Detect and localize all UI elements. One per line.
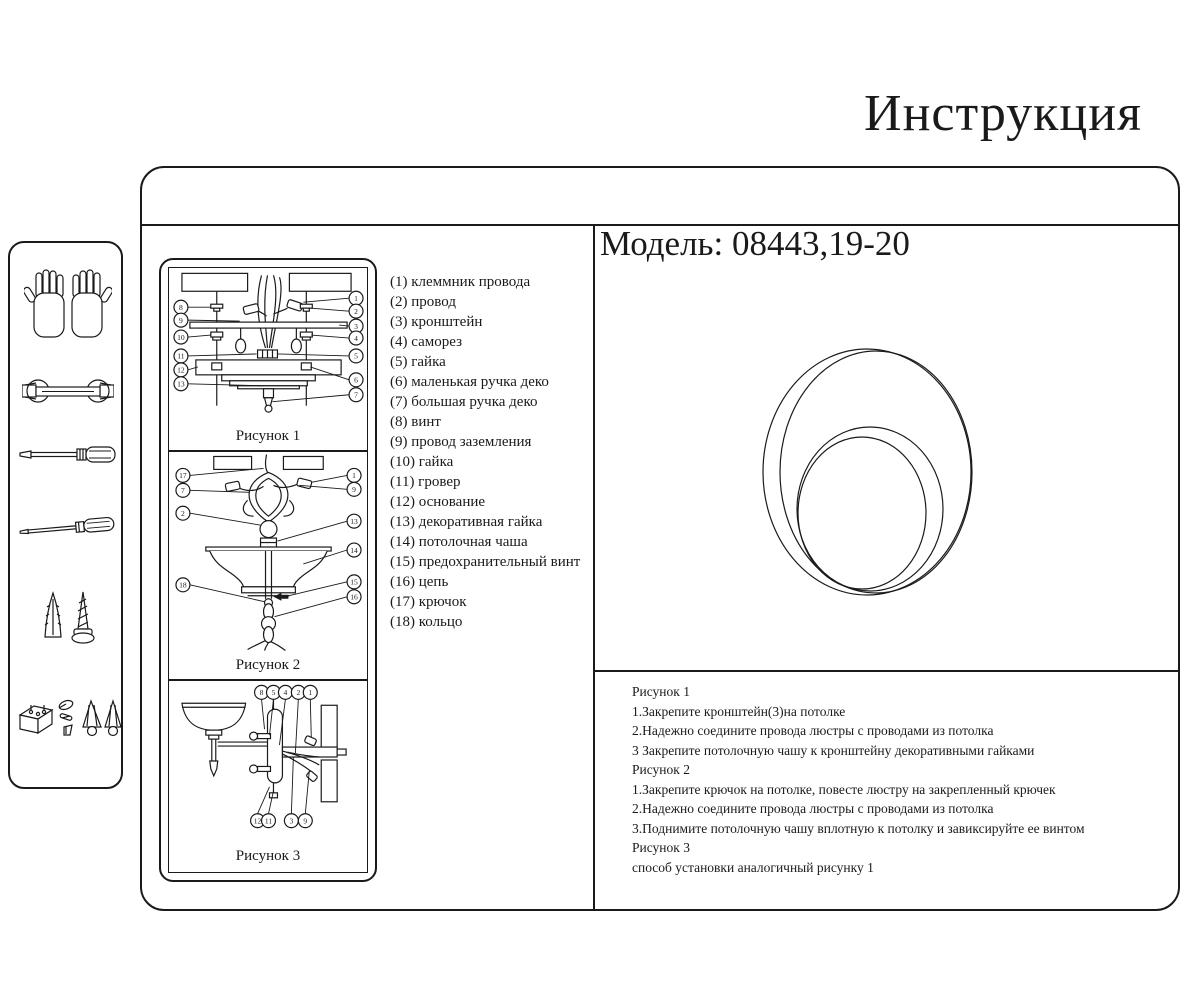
part-item: (4) саморез xyxy=(390,332,592,352)
instruction-line: 2.Надежно соедините провода люстры с про… xyxy=(632,721,1132,741)
figure-2: 17 7 2 18 1 9 13 14 15 16 Рисунок 2 xyxy=(169,452,367,681)
callout-number: 2 xyxy=(181,509,185,518)
callout-number: 9 xyxy=(179,316,183,325)
callout-number: 12 xyxy=(253,816,261,825)
figure-3: 8 5 4 2 1 12 11 3 9 Рисунок 3 xyxy=(169,681,367,870)
callout-number: 3 xyxy=(289,816,293,825)
page-title: Инструкция xyxy=(864,84,1142,143)
screwdriver-icon xyxy=(10,441,125,469)
figure-2-diagram: 17 7 2 18 1 9 13 14 15 16 xyxy=(170,452,367,652)
callout-number: 15 xyxy=(350,578,358,587)
callout-number: 9 xyxy=(303,816,307,825)
callout-number: 1 xyxy=(354,294,358,303)
part-item: (2) провод xyxy=(390,292,592,312)
lamp-illustration xyxy=(742,333,1022,618)
part-item: (17) крючок xyxy=(390,592,592,612)
part-item: (6) маленькая ручка деко xyxy=(390,372,592,392)
part-item: (18) кольцо xyxy=(390,612,592,632)
vertical-divider xyxy=(593,224,595,909)
instruction-line: 1.Закрепите кронштейн(3)на потолке xyxy=(632,702,1132,722)
callout-number: 3 xyxy=(354,322,358,331)
instruction-line: Рисунок 2 xyxy=(632,760,1132,780)
part-item: (3) кронштейн xyxy=(390,312,592,332)
part-item: (12) основание xyxy=(390,492,592,512)
parts-list: (1) клеммник провода (2) провод (3) крон… xyxy=(390,272,592,632)
gloves-icon xyxy=(10,267,125,343)
callout-number: 5 xyxy=(271,688,275,697)
callout-number: 7 xyxy=(354,391,358,400)
instruction-line: Рисунок 3 xyxy=(632,838,1132,858)
callout-number: 12 xyxy=(177,366,185,375)
instruction-sheet: { "title": "Инструкция", "model_line": "… xyxy=(0,0,1200,999)
figure-3-diagram: 8 5 4 2 1 12 11 3 9 xyxy=(170,681,367,837)
callout-number: 1 xyxy=(308,688,312,697)
callout-number: 4 xyxy=(283,688,287,697)
callout-number: 1 xyxy=(352,471,356,480)
callout-number: 13 xyxy=(177,380,185,389)
figure-3-label: Рисунок 3 xyxy=(169,848,367,865)
figure-1: 8 9 10 11 12 13 1 2 3 4 5 6 xyxy=(169,268,367,452)
callout-number: 4 xyxy=(354,334,358,343)
part-item: (5) гайка xyxy=(390,352,592,372)
hardware-set-icon xyxy=(10,693,125,749)
figure-1-diagram: 8 9 10 11 12 13 1 2 3 4 5 6 xyxy=(170,268,367,422)
instruction-line: способ установки аналогичный рисунку 1 xyxy=(632,858,1132,878)
part-item: (11) гровер xyxy=(390,472,592,492)
part-item: (7) большая ручка деко xyxy=(390,392,592,412)
instruction-line: 2.Надежно соедините провода люстры с про… xyxy=(632,799,1132,819)
callout-number: 7 xyxy=(181,486,185,495)
callout-number: 8 xyxy=(179,303,183,312)
part-item: (9) провод заземления xyxy=(390,432,592,452)
instruction-line: 3.Поднимите потолочную чашу вплотную к п… xyxy=(632,819,1132,839)
callout-number: 8 xyxy=(259,688,263,697)
callout-number: 14 xyxy=(350,546,358,555)
figure-2-label: Рисунок 2 xyxy=(169,657,367,674)
callout-number: 18 xyxy=(179,581,187,590)
callout-number: 5 xyxy=(354,352,358,361)
callout-number: 11 xyxy=(177,352,184,361)
callout-number: 17 xyxy=(179,471,187,480)
part-item: (13) декоративная гайка xyxy=(390,512,592,532)
callout-number: 2 xyxy=(354,307,358,316)
callout-number: 9 xyxy=(352,485,356,494)
figure-1-callouts-right: 1 2 3 4 5 6 7 xyxy=(349,291,363,401)
instruction-main-box: 8 9 10 11 12 13 1 2 3 4 5 6 xyxy=(140,166,1180,911)
callout-number: 16 xyxy=(350,593,358,602)
installation-instructions: Рисунок 1 1.Закрепите кронштейн(3)на пот… xyxy=(632,682,1132,877)
part-item: (8) винт xyxy=(390,412,592,432)
figure-1-callouts-left: 8 9 10 11 12 13 xyxy=(173,300,187,391)
callout-number: 2 xyxy=(296,688,300,697)
part-item: (1) клеммник провода xyxy=(390,272,592,292)
instruction-line: Рисунок 1 xyxy=(632,682,1132,702)
figure-3-callouts-top: 8 5 4 2 1 xyxy=(254,685,317,699)
figure-1-label: Рисунок 1 xyxy=(169,428,367,445)
figure-2-callouts-right: 1 9 13 14 15 16 xyxy=(347,468,361,603)
callout-number: 13 xyxy=(350,517,358,526)
model-number: Модель: 08443,19-20 xyxy=(600,224,910,264)
part-item: (15) предохранительный винт xyxy=(390,552,592,572)
figures-panel-inner: 8 9 10 11 12 13 1 2 3 4 5 6 xyxy=(168,267,368,873)
callout-number: 11 xyxy=(264,816,271,825)
wall-anchor-and-screw-icon xyxy=(10,589,125,655)
thin-screwdriver-icon xyxy=(10,511,125,545)
part-item: (16) цепь xyxy=(390,572,592,592)
instruction-line: 1.Закрепите крючок на потолке, повесте л… xyxy=(632,780,1132,800)
figure-2-callouts-left: 17 7 2 18 xyxy=(175,468,189,591)
figures-panel: 8 9 10 11 12 13 1 2 3 4 5 6 xyxy=(159,258,377,882)
right-section-divider xyxy=(593,670,1178,672)
wrench-icon xyxy=(10,371,125,411)
callout-number: 6 xyxy=(354,376,358,385)
tools-sidebar xyxy=(8,241,123,789)
part-item: (10) гайка xyxy=(390,452,592,472)
part-item: (14) потолочная чаша xyxy=(390,532,592,552)
callout-number: 10 xyxy=(177,333,185,342)
instruction-line: 3 Закрепите потолочную чашу к кронштейну… xyxy=(632,741,1132,761)
figure-3-callouts-bottom: 12 11 3 9 xyxy=(250,814,312,828)
